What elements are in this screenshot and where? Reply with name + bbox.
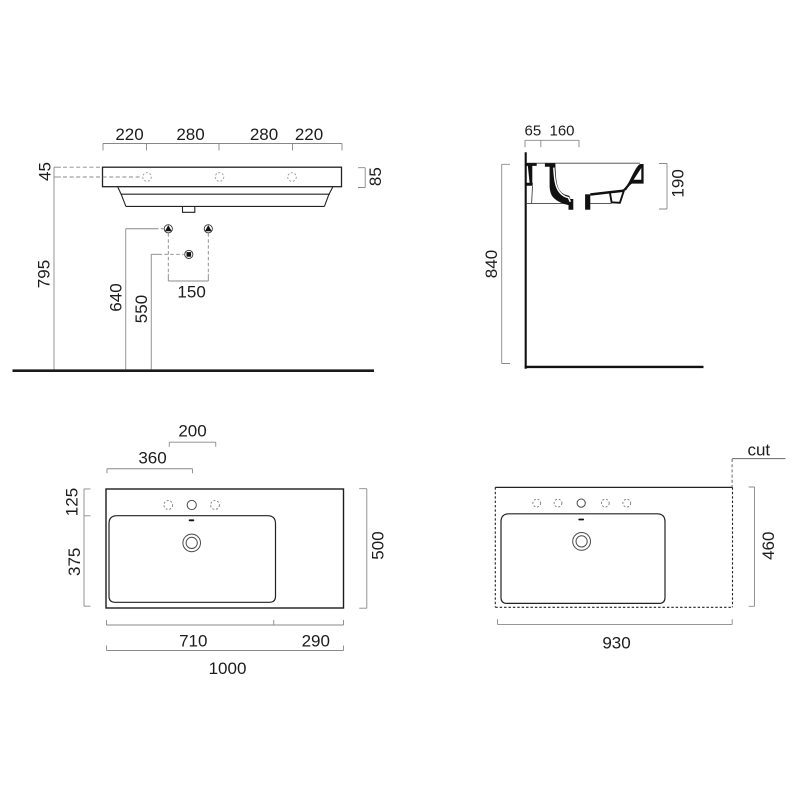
svg-text:280: 280 [250, 125, 278, 144]
svg-text:840: 840 [482, 250, 501, 278]
svg-text:45: 45 [35, 162, 54, 181]
svg-text:150: 150 [177, 283, 205, 302]
svg-text:200: 200 [178, 422, 206, 441]
svg-text:220: 220 [295, 125, 323, 144]
svg-text:550: 550 [132, 295, 151, 323]
svg-text:160: 160 [549, 123, 574, 140]
svg-text:930: 930 [602, 634, 630, 653]
svg-text:85: 85 [366, 167, 385, 186]
svg-text:290: 290 [302, 632, 330, 651]
svg-text:795: 795 [35, 260, 54, 288]
svg-text:125: 125 [63, 488, 82, 516]
svg-text:190: 190 [669, 169, 688, 197]
svg-text:710: 710 [179, 632, 207, 651]
svg-text:cut: cut [747, 441, 770, 460]
svg-text:1000: 1000 [209, 659, 247, 678]
svg-text:280: 280 [176, 125, 204, 144]
svg-text:360: 360 [138, 449, 166, 468]
svg-text:375: 375 [65, 548, 84, 576]
svg-text:460: 460 [759, 532, 778, 560]
svg-text:220: 220 [115, 125, 143, 144]
svg-text:640: 640 [107, 283, 126, 311]
svg-text:500: 500 [369, 531, 388, 559]
svg-text:65: 65 [525, 123, 542, 140]
